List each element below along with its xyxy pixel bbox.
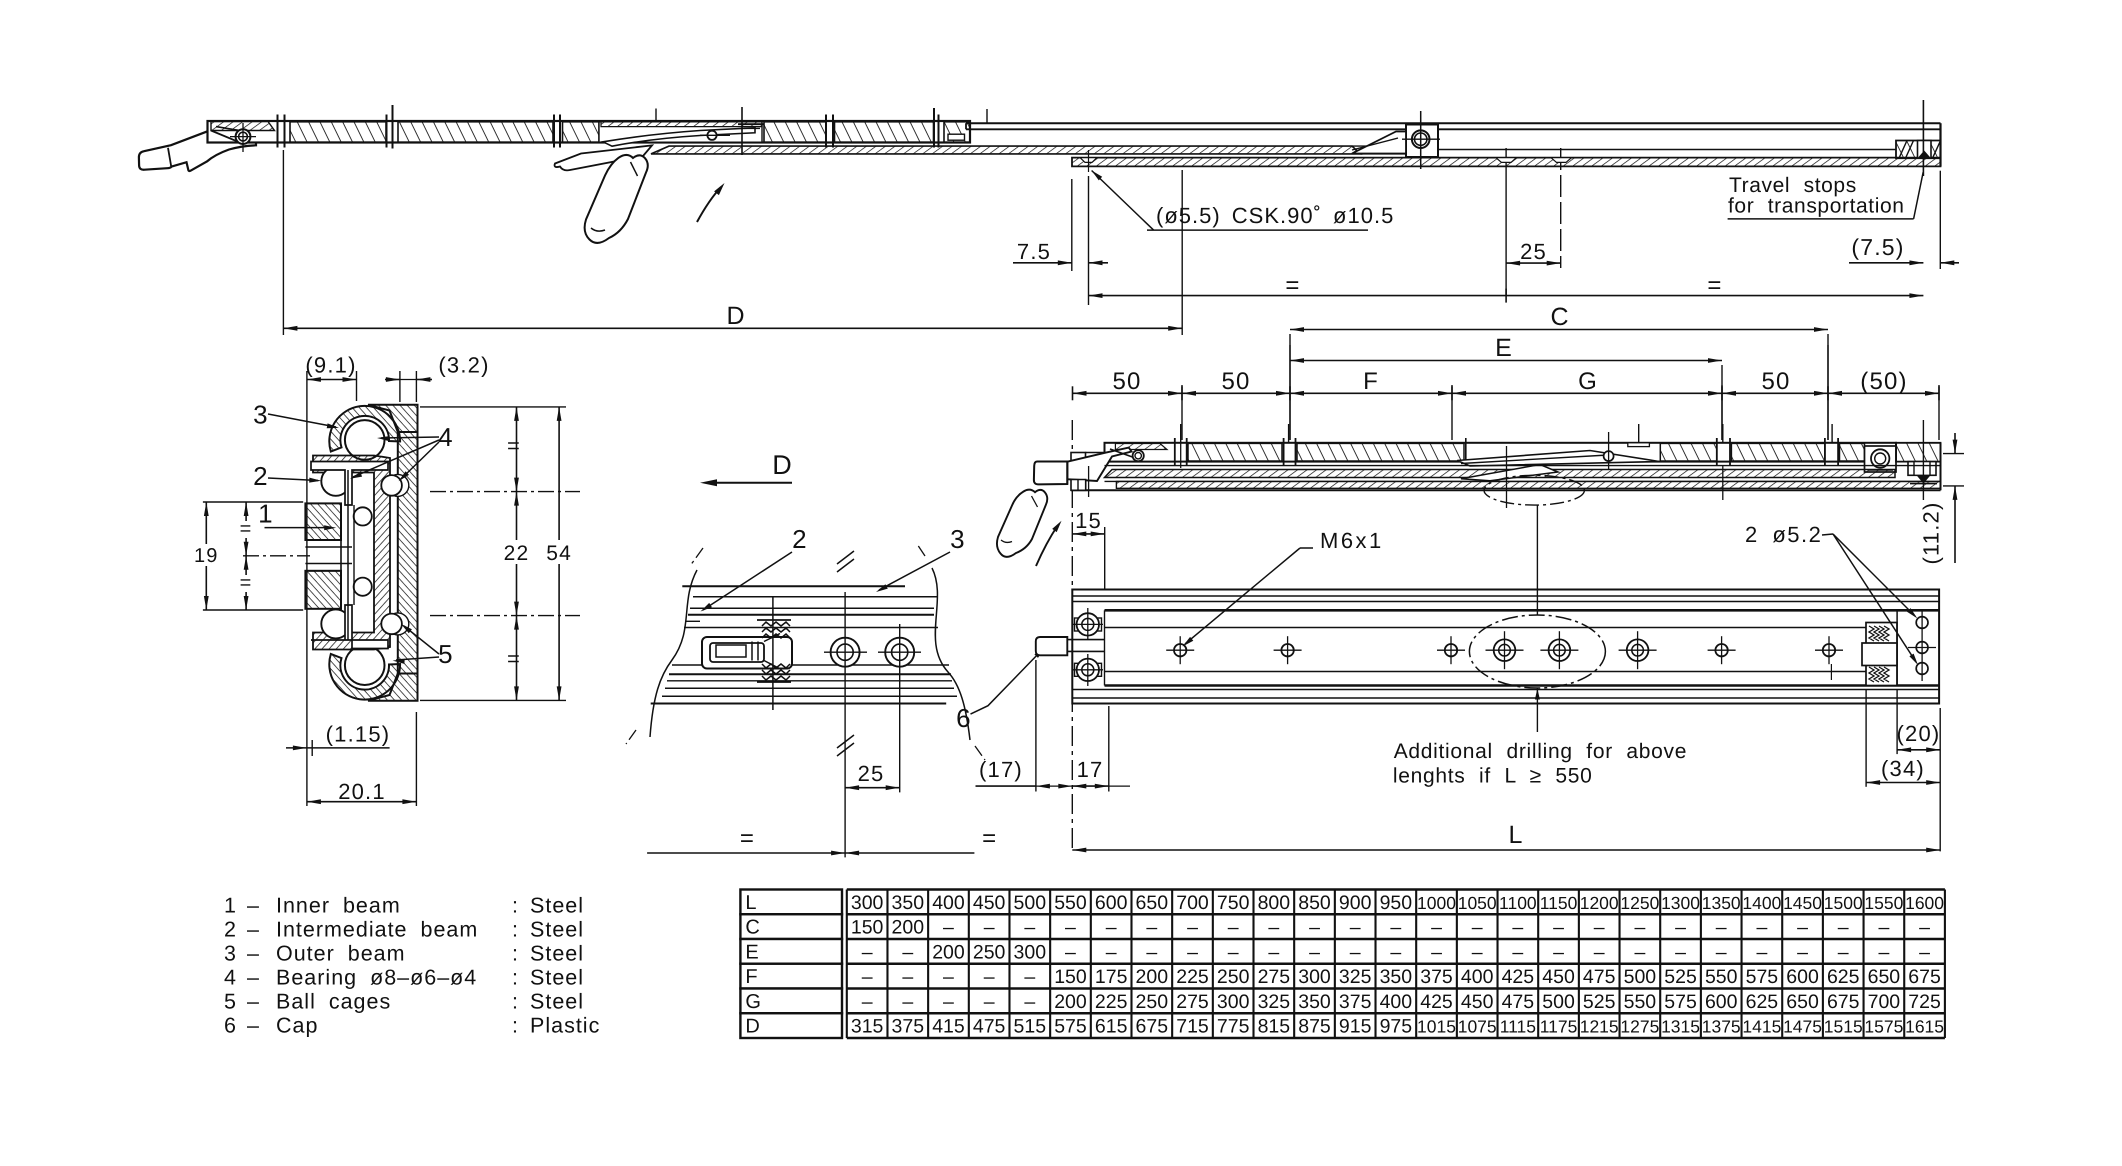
svg-text:2: 2: [792, 524, 808, 554]
svg-text:1475: 1475: [1783, 1017, 1822, 1037]
svg-text:200: 200: [892, 917, 925, 939]
svg-text:1450: 1450: [1783, 893, 1822, 913]
svg-text:–: –: [984, 991, 995, 1013]
svg-text:1515: 1515: [1824, 1017, 1863, 1037]
svg-text:6: 6: [224, 1014, 237, 1038]
svg-text:600: 600: [1095, 892, 1128, 914]
svg-text:225: 225: [1176, 966, 1209, 988]
svg-text:200: 200: [1136, 966, 1169, 988]
svg-text:G: G: [745, 991, 761, 1013]
svg-text:1100: 1100: [1499, 893, 1537, 913]
svg-text:550: 550: [1624, 991, 1657, 1013]
svg-text:=: =: [507, 646, 521, 671]
svg-text:350: 350: [1298, 991, 1331, 1013]
svg-text:1350: 1350: [1702, 893, 1741, 913]
svg-text:300: 300: [1014, 941, 1047, 963]
svg-text:415: 415: [932, 1016, 965, 1038]
svg-text:300: 300: [1217, 991, 1250, 1013]
svg-text:1175: 1175: [1540, 1017, 1578, 1037]
svg-text:675: 675: [1827, 991, 1860, 1013]
svg-text:500: 500: [1624, 966, 1657, 988]
svg-text:1015: 1015: [1417, 1017, 1456, 1037]
svg-text:575: 575: [1054, 1016, 1087, 1038]
svg-text:–: –: [1472, 917, 1483, 939]
svg-text:15: 15: [1075, 508, 1102, 533]
svg-text:400: 400: [932, 892, 965, 914]
svg-text:–: –: [1919, 917, 1930, 939]
svg-text:–: –: [1553, 941, 1564, 963]
svg-text:–: –: [247, 1014, 260, 1038]
svg-text:800: 800: [1258, 892, 1291, 914]
svg-text:Outer beam: Outer beam: [276, 942, 406, 966]
svg-text:50: 50: [1761, 368, 1790, 395]
svg-text:–: –: [1797, 917, 1808, 939]
svg-text:675: 675: [1908, 966, 1941, 988]
svg-text:22: 22: [504, 542, 530, 565]
svg-text:750: 750: [1217, 892, 1250, 914]
svg-text:–: –: [1309, 917, 1320, 939]
svg-text:375: 375: [892, 1016, 925, 1038]
svg-text:400: 400: [1461, 966, 1494, 988]
svg-text:950: 950: [1380, 892, 1413, 914]
svg-text:Plastic: Plastic: [530, 1014, 600, 1038]
svg-text:–: –: [1228, 941, 1239, 963]
svg-text::: :: [512, 1014, 519, 1038]
svg-text:(7.5): (7.5): [1851, 234, 1904, 260]
svg-text:150: 150: [1054, 966, 1087, 988]
svg-text:=: =: [982, 825, 997, 852]
svg-text:450: 450: [1461, 991, 1494, 1013]
svg-text:315: 315: [851, 1016, 884, 1038]
svg-text:50: 50: [1221, 368, 1250, 395]
svg-text:1150: 1150: [1540, 893, 1578, 913]
svg-text:2 ø5.2: 2 ø5.2: [1745, 522, 1822, 547]
svg-text:–: –: [1187, 941, 1198, 963]
svg-text:–: –: [1390, 941, 1401, 963]
svg-text:–: –: [247, 990, 260, 1014]
svg-text:–: –: [1919, 941, 1930, 963]
svg-text:–: –: [1594, 917, 1605, 939]
svg-text:G: G: [1578, 368, 1598, 395]
svg-text:Steel: Steel: [530, 918, 584, 942]
svg-text:=: =: [1285, 272, 1300, 299]
svg-text:–: –: [902, 941, 913, 963]
svg-text:–: –: [1024, 991, 1035, 1013]
svg-text:1615: 1615: [1905, 1017, 1944, 1037]
svg-text:1315: 1315: [1661, 1017, 1700, 1037]
svg-text:715: 715: [1176, 1016, 1209, 1038]
svg-text:–: –: [247, 966, 260, 990]
svg-text:475: 475: [1583, 966, 1616, 988]
svg-text:=: =: [240, 518, 253, 540]
svg-text:25: 25: [1520, 239, 1547, 264]
svg-text:D: D: [772, 450, 793, 480]
svg-text:5: 5: [224, 990, 237, 1014]
svg-text:for transportation: for transportation: [1728, 195, 1905, 218]
svg-text:=: =: [740, 825, 755, 852]
svg-text:(3.2): (3.2): [438, 353, 489, 378]
svg-text:375: 375: [1420, 966, 1453, 988]
svg-text:–: –: [943, 966, 954, 988]
svg-text:4: 4: [438, 422, 454, 452]
svg-text:–: –: [1634, 917, 1645, 939]
svg-text:–: –: [1431, 917, 1442, 939]
svg-text:1: 1: [224, 894, 237, 918]
svg-text:–: –: [247, 894, 260, 918]
svg-text:300: 300: [1298, 966, 1331, 988]
svg-text:–: –: [1024, 966, 1035, 988]
svg-text:1: 1: [258, 499, 274, 529]
svg-text:–: –: [1838, 941, 1849, 963]
svg-text:–: –: [1512, 941, 1523, 963]
svg-text:(17): (17): [979, 757, 1023, 782]
svg-text:700: 700: [1176, 892, 1209, 914]
svg-text:650: 650: [1136, 892, 1169, 914]
svg-text:2: 2: [253, 461, 269, 491]
svg-text:–: –: [247, 918, 260, 942]
svg-text:3: 3: [224, 942, 237, 966]
svg-text:–: –: [1024, 917, 1035, 939]
svg-text:500: 500: [1014, 892, 1047, 914]
svg-text:6: 6: [956, 703, 972, 733]
svg-text:–: –: [984, 966, 995, 988]
svg-text:–: –: [902, 966, 913, 988]
svg-text:–: –: [1512, 917, 1523, 939]
svg-text:–: –: [1065, 941, 1076, 963]
svg-text:Intermediate beam: Intermediate beam: [276, 918, 478, 942]
svg-text:–: –: [1472, 941, 1483, 963]
svg-text:1000: 1000: [1417, 893, 1456, 913]
svg-text:900: 900: [1339, 892, 1372, 914]
svg-text:–: –: [902, 991, 913, 1013]
svg-text:D: D: [726, 302, 745, 330]
svg-text:250: 250: [1136, 991, 1169, 1013]
svg-text:C: C: [745, 917, 760, 939]
svg-text::: :: [512, 894, 519, 918]
svg-text:7.5: 7.5: [1017, 239, 1051, 264]
svg-text:575: 575: [1664, 991, 1697, 1013]
svg-text:425: 425: [1502, 966, 1535, 988]
svg-text:700: 700: [1868, 991, 1901, 1013]
svg-text:(34): (34): [1881, 756, 1925, 781]
svg-text::: :: [512, 990, 519, 1014]
svg-text:1400: 1400: [1742, 893, 1781, 913]
svg-text:Bearing ø8–ø6–ø4: Bearing ø8–ø6–ø4: [276, 966, 477, 990]
svg-text:(ø5.5) CSK.90˚ ø10.5: (ø5.5) CSK.90˚ ø10.5: [1156, 203, 1394, 228]
svg-text:815: 815: [1258, 1016, 1291, 1038]
svg-text::: :: [512, 918, 519, 942]
svg-text:Steel: Steel: [530, 966, 584, 990]
svg-text:1215: 1215: [1580, 1017, 1619, 1037]
svg-text:E: E: [745, 941, 759, 963]
svg-text:–: –: [1716, 941, 1727, 963]
svg-text:300: 300: [851, 892, 884, 914]
svg-text:Inner beam: Inner beam: [276, 894, 401, 918]
svg-text:–: –: [862, 941, 873, 963]
svg-text:1250: 1250: [1620, 893, 1659, 913]
svg-text:(20): (20): [1897, 721, 1941, 746]
svg-text:1050: 1050: [1458, 893, 1497, 913]
svg-text:650: 650: [1868, 966, 1901, 988]
svg-text:1600: 1600: [1905, 893, 1944, 913]
svg-text:450: 450: [973, 892, 1006, 914]
svg-text:M6x1: M6x1: [1320, 528, 1384, 553]
svg-text:250: 250: [1217, 966, 1250, 988]
svg-text:600: 600: [1705, 991, 1738, 1013]
svg-text:F: F: [1363, 368, 1379, 395]
svg-text:600: 600: [1786, 966, 1819, 988]
svg-text:20.1: 20.1: [338, 779, 386, 804]
svg-text::: :: [512, 942, 519, 966]
svg-text:550: 550: [1054, 892, 1087, 914]
svg-text:L: L: [745, 892, 757, 914]
svg-text:lenghts if L ≥ 550: lenghts if L ≥ 550: [1393, 765, 1593, 788]
svg-text:–: –: [1756, 917, 1767, 939]
svg-text:615: 615: [1095, 1016, 1128, 1038]
svg-text:875: 875: [1298, 1016, 1331, 1038]
svg-text:Steel: Steel: [530, 990, 584, 1014]
svg-text:–: –: [1756, 941, 1767, 963]
svg-text:–: –: [1268, 917, 1279, 939]
svg-text:4: 4: [224, 966, 237, 990]
svg-text:–: –: [1675, 941, 1686, 963]
svg-text:F: F: [745, 966, 758, 988]
svg-text:150: 150: [851, 917, 884, 939]
svg-text:54: 54: [546, 542, 572, 565]
svg-text:–: –: [1146, 941, 1157, 963]
svg-text:575: 575: [1746, 966, 1779, 988]
svg-text:–: –: [984, 917, 995, 939]
svg-text:–: –: [1106, 941, 1117, 963]
svg-text:675: 675: [1136, 1016, 1169, 1038]
svg-text:175: 175: [1095, 966, 1128, 988]
svg-text:350: 350: [1380, 966, 1413, 988]
svg-text:–: –: [1268, 941, 1279, 963]
svg-text:275: 275: [1176, 991, 1209, 1013]
svg-text:Steel: Steel: [530, 942, 584, 966]
svg-text:450: 450: [1542, 966, 1575, 988]
svg-text:(50): (50): [1860, 368, 1907, 395]
svg-text:(1.15): (1.15): [326, 722, 391, 747]
svg-text:–: –: [943, 917, 954, 939]
svg-text:19: 19: [194, 545, 219, 567]
svg-text:–: –: [1838, 917, 1849, 939]
svg-text:2: 2: [224, 918, 237, 942]
svg-text:–: –: [1553, 917, 1564, 939]
svg-text:–: –: [1878, 917, 1889, 939]
svg-text:=: =: [240, 572, 253, 594]
svg-text:–: –: [1187, 917, 1198, 939]
svg-text:25: 25: [858, 761, 885, 786]
svg-text:–: –: [1065, 917, 1076, 939]
svg-text:Cap: Cap: [276, 1014, 318, 1038]
svg-text:–: –: [1309, 941, 1320, 963]
svg-text:–: –: [1431, 941, 1442, 963]
svg-text:–: –: [1350, 941, 1361, 963]
svg-text:625: 625: [1827, 966, 1860, 988]
svg-text:–: –: [943, 991, 954, 1013]
svg-text:200: 200: [1054, 991, 1087, 1013]
svg-text:1375: 1375: [1702, 1017, 1741, 1037]
svg-text:325: 325: [1339, 966, 1372, 988]
svg-text:250: 250: [973, 941, 1006, 963]
svg-text:Additional drilling for above: Additional drilling for above: [1394, 740, 1687, 763]
svg-text:200: 200: [932, 941, 965, 963]
svg-text:–: –: [862, 966, 873, 988]
svg-text:5: 5: [438, 639, 454, 669]
svg-text:–: –: [1797, 941, 1808, 963]
svg-text:1550: 1550: [1864, 893, 1903, 913]
svg-text:3: 3: [950, 524, 966, 554]
svg-text:3: 3: [253, 400, 269, 430]
svg-text:625: 625: [1746, 991, 1779, 1013]
svg-text:775: 775: [1217, 1016, 1250, 1038]
svg-text:425: 425: [1420, 991, 1453, 1013]
svg-text:(11.2): (11.2): [1919, 501, 1944, 564]
svg-text:400: 400: [1380, 991, 1413, 1013]
svg-text:–: –: [1716, 917, 1727, 939]
svg-text:275: 275: [1258, 966, 1291, 988]
svg-text:1500: 1500: [1824, 893, 1863, 913]
svg-text:1075: 1075: [1458, 1017, 1497, 1037]
svg-text:(9.1): (9.1): [305, 353, 356, 378]
svg-text:525: 525: [1664, 966, 1697, 988]
svg-text:=: =: [1707, 272, 1722, 299]
svg-text:350: 350: [892, 892, 925, 914]
svg-text:–: –: [1106, 917, 1117, 939]
svg-text:D: D: [745, 1016, 760, 1038]
svg-text:1275: 1275: [1620, 1017, 1659, 1037]
svg-text:1575: 1575: [1864, 1017, 1903, 1037]
svg-text:975: 975: [1380, 1016, 1413, 1038]
svg-text:–: –: [1878, 941, 1889, 963]
svg-text:375: 375: [1339, 991, 1372, 1013]
svg-text:1200: 1200: [1580, 893, 1619, 913]
svg-text:–: –: [1390, 917, 1401, 939]
svg-text:Ball cages: Ball cages: [276, 990, 391, 1014]
svg-text:550: 550: [1705, 966, 1738, 988]
svg-text:–: –: [1146, 917, 1157, 939]
svg-text:–: –: [1350, 917, 1361, 939]
svg-text:475: 475: [1502, 991, 1535, 1013]
svg-text:725: 725: [1908, 991, 1941, 1013]
svg-text:=: =: [507, 433, 521, 458]
svg-text:17: 17: [1077, 757, 1104, 782]
svg-text:–: –: [247, 942, 260, 966]
svg-text:Steel: Steel: [530, 894, 584, 918]
svg-text:–: –: [1228, 917, 1239, 939]
svg-text:1300: 1300: [1661, 893, 1700, 913]
svg-text:475: 475: [973, 1016, 1006, 1038]
svg-text:E: E: [1495, 334, 1513, 362]
svg-text:–: –: [1594, 941, 1605, 963]
svg-text:L: L: [1509, 821, 1524, 849]
svg-text:–: –: [1634, 941, 1645, 963]
svg-text:–: –: [1675, 917, 1686, 939]
svg-text:C: C: [1550, 303, 1569, 331]
svg-text:915: 915: [1339, 1016, 1372, 1038]
svg-text:325: 325: [1258, 991, 1291, 1013]
svg-text:525: 525: [1583, 991, 1616, 1013]
svg-text:850: 850: [1298, 892, 1331, 914]
svg-text:–: –: [862, 991, 873, 1013]
svg-text:515: 515: [1014, 1016, 1047, 1038]
svg-text:1415: 1415: [1742, 1017, 1781, 1037]
svg-text:650: 650: [1786, 991, 1819, 1013]
svg-text:1115: 1115: [1500, 1017, 1536, 1037]
svg-text:225: 225: [1095, 991, 1128, 1013]
svg-text::: :: [512, 966, 519, 990]
svg-text:50: 50: [1112, 368, 1141, 395]
svg-text:500: 500: [1542, 991, 1575, 1013]
